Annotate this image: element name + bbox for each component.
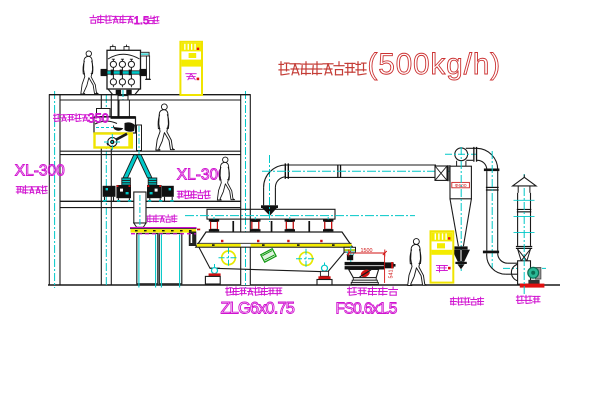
svg-text:XL-300: XL-300 xyxy=(15,162,65,179)
svg-text:350: 350 xyxy=(88,112,109,126)
svg-text:1500: 1500 xyxy=(361,248,373,254)
svg-text:ZLG6x0.75: ZLG6x0.75 xyxy=(221,300,295,318)
svg-text:FS0.6x1.5: FS0.6x1.5 xyxy=(336,301,397,318)
svg-text:(500kg/h): (500kg/h) xyxy=(368,48,502,81)
svg-text:541: 541 xyxy=(389,270,395,279)
svg-text:1.5: 1.5 xyxy=(134,15,149,27)
